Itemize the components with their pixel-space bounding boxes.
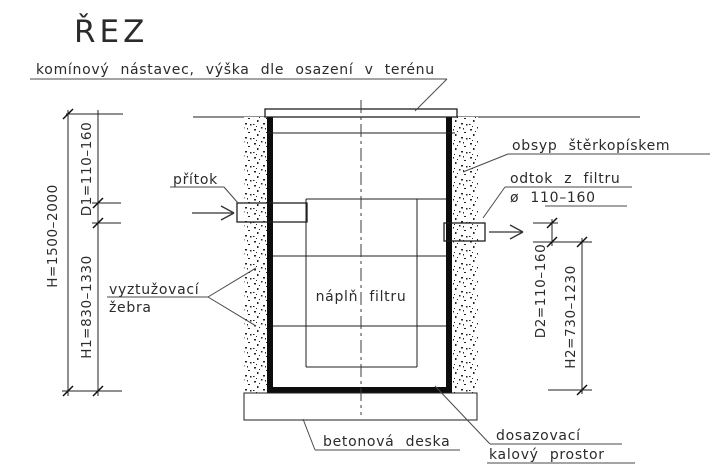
backfill-label: obsyp štěrkopískem <box>512 138 670 154</box>
gravel-backfill-right <box>453 117 478 393</box>
callout-ribs: vyztužovací žebra <box>107 268 256 326</box>
dim-outlet-height: H2=730–1230 <box>563 265 579 369</box>
callout-backfill: obsyp štěrkopískem <box>463 138 710 172</box>
dim-outlet-diameter: D2=110–160 <box>533 244 549 339</box>
section-drawing: H=1500–2000 D1=110–160 H1=830–1330 D2=11… <box>0 0 715 467</box>
technical-drawing-canvas: H=1500–2000 D1=110–160 H1=830–1330 D2=11… <box>0 0 715 467</box>
gravel-backfill-left <box>244 117 267 393</box>
ribs-label-line1: vyztužovací <box>109 282 200 298</box>
filter-media-box <box>306 199 446 367</box>
outflow-arrow-icon <box>489 225 523 239</box>
dim-overall-height: H=1500–2000 <box>45 184 61 288</box>
filter-fill-label: náplň filtru <box>316 289 407 305</box>
outlet-label-line2: ø 110–160 <box>510 190 596 206</box>
drawing-title: ŘEZ <box>74 14 148 50</box>
chimney-label: komínový nástavec, výška dle osazení v t… <box>36 62 435 78</box>
slab-label: betonová deska <box>323 434 450 450</box>
callout-inlet: přítok <box>170 172 238 203</box>
inlet-label: přítok <box>173 172 218 188</box>
outlet-label-line1: odtok z filtru <box>510 171 621 187</box>
callout-slab: betonová deska <box>303 419 460 450</box>
ribs-label-line2: žebra <box>109 300 152 316</box>
inflow-arrow-icon <box>192 206 234 220</box>
filter-fill-label-group: náplň filtru <box>316 289 407 305</box>
dimension-right: D2=110–160 H2=730–1230 <box>533 218 592 395</box>
dim-inlet-diameter: D1=110–160 <box>79 122 95 217</box>
callout-chimney: komínový nástavec, výška dle osazení v t… <box>30 62 447 111</box>
dimension-left: H=1500–2000 D1=110–160 H1=830–1330 <box>45 109 123 396</box>
callout-outlet: odtok z filtru ø 110–160 <box>483 171 632 218</box>
callout-sludge: dosazovací kalový prostor <box>435 386 635 463</box>
sludge-label-line2: kalový prostor <box>489 447 605 463</box>
sludge-label-line1: dosazovací <box>496 428 581 444</box>
tank-walls <box>267 117 452 393</box>
dim-inlet-height: H1=830–1330 <box>79 255 95 359</box>
